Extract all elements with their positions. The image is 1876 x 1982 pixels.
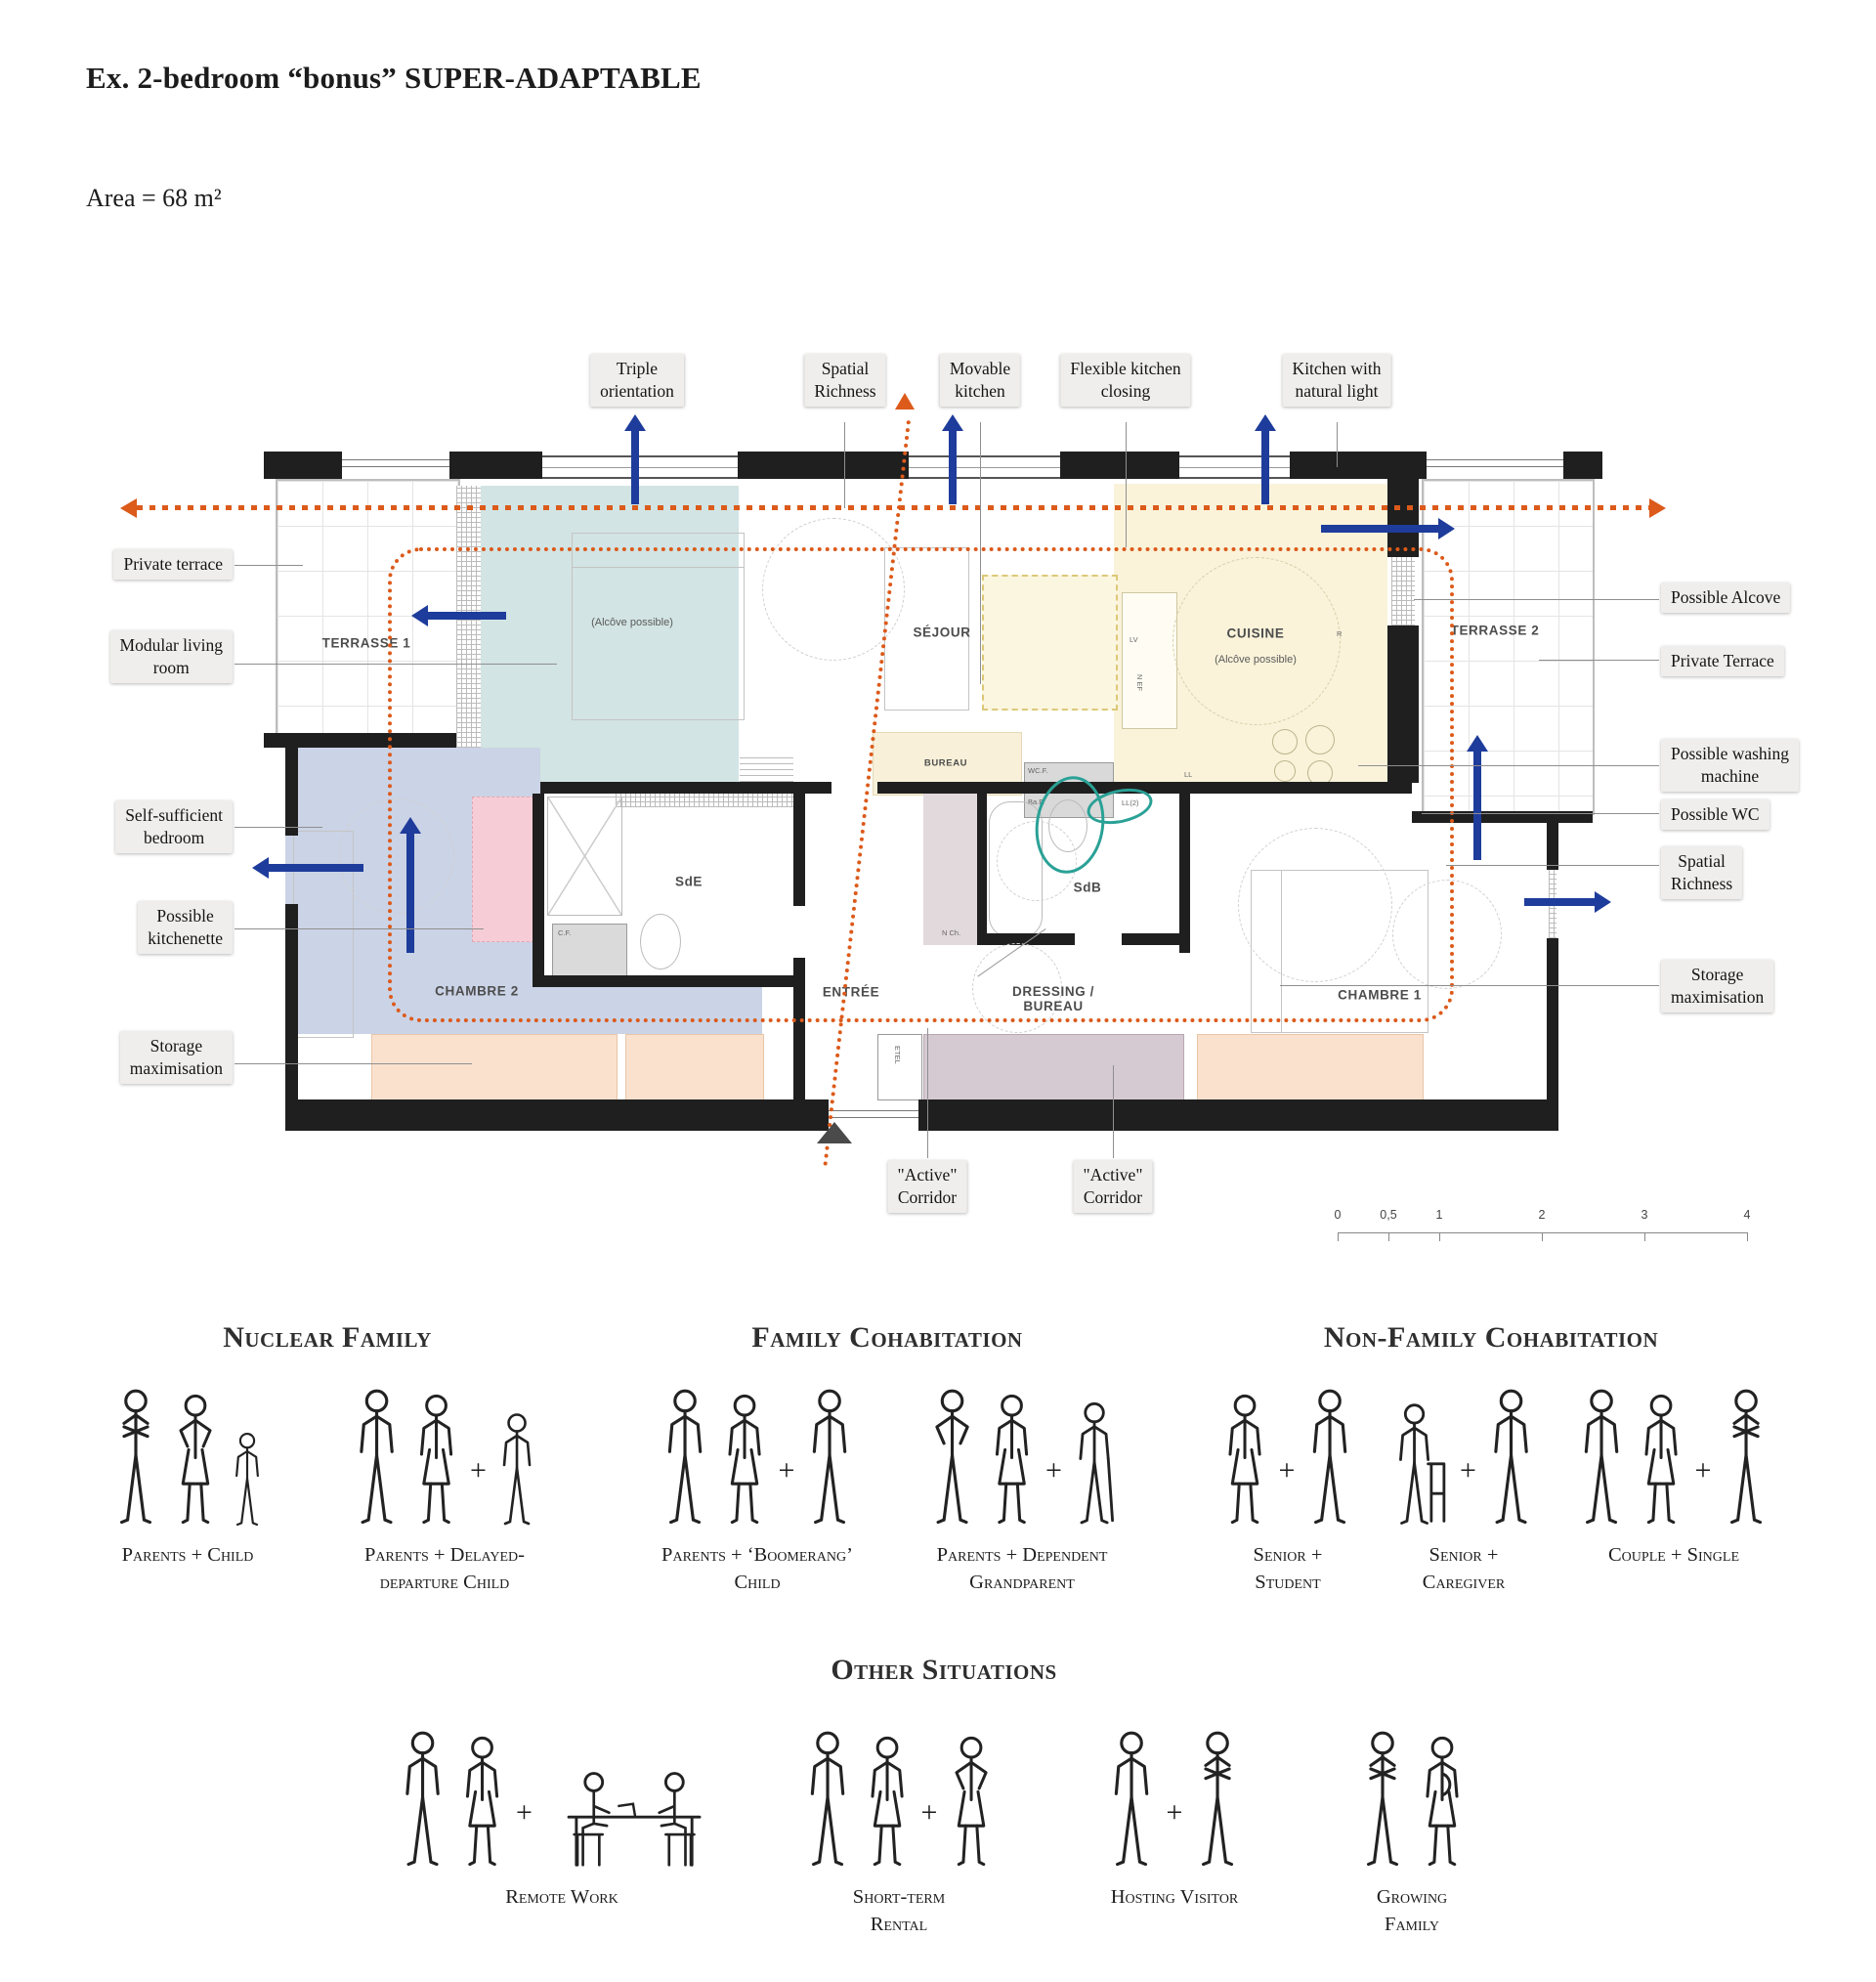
household-group: + Couple + Single xyxy=(1576,1383,1772,1570)
callout-flexible-kitchen: Flexible kitchenclosing xyxy=(1060,354,1190,407)
household-group: + Remote Work xyxy=(397,1725,727,1912)
group-label: Parents + DependentGrandparent xyxy=(926,1542,1118,1596)
leader xyxy=(980,422,981,684)
household-group: Parents + Child xyxy=(110,1383,266,1570)
plus-sign: + xyxy=(1695,1454,1712,1487)
plus-sign: + xyxy=(1045,1454,1062,1487)
leader xyxy=(234,664,557,665)
arrowhead xyxy=(1255,414,1276,431)
figures: + xyxy=(351,1383,538,1530)
wall xyxy=(1060,452,1179,479)
arrow-kitchen-terrace2 xyxy=(1321,525,1438,533)
figures: + xyxy=(1390,1383,1537,1530)
scale-tick xyxy=(1388,1232,1389,1241)
scale-bar: 0 0,5 1 2 3 4 xyxy=(1338,1208,1747,1247)
scale-num: 2 xyxy=(1539,1208,1546,1222)
group-label: Senior +Caregiver xyxy=(1390,1542,1537,1596)
household-group: GrowingFamily xyxy=(1357,1725,1468,1938)
figures: + xyxy=(1106,1725,1244,1872)
wall xyxy=(738,452,909,479)
entrance-marker xyxy=(817,1122,852,1143)
callout-storage-right: Storagemaximisation xyxy=(1661,960,1773,1013)
wall xyxy=(264,452,342,479)
figures xyxy=(110,1383,266,1530)
callout-storage-left: Storagemaximisation xyxy=(120,1031,233,1084)
leader xyxy=(1446,865,1659,866)
orange-arrowhead-up xyxy=(895,393,915,409)
group-label: Hosting Visitor xyxy=(1106,1884,1244,1912)
plus-sign: + xyxy=(516,1796,533,1830)
storage-strip xyxy=(625,1034,764,1100)
section-title-nonfamily-cohab: Non-Family Cohabitation xyxy=(1324,1321,1658,1355)
window xyxy=(1179,455,1290,479)
section-title-nuclear: Nuclear Family xyxy=(223,1321,432,1355)
plus-sign: + xyxy=(470,1454,487,1487)
leader xyxy=(1126,422,1127,547)
plus-sign: + xyxy=(1167,1796,1183,1830)
window xyxy=(542,455,738,479)
scale-num: 4 xyxy=(1744,1208,1751,1222)
orange-arrowhead-left xyxy=(120,498,137,518)
callout-self-sufficient-bedroom: Self-sufficientbedroom xyxy=(115,800,233,853)
arrow-kitchen-light xyxy=(1261,430,1269,504)
callout-possible-kitchenette: Possiblekitchenette xyxy=(138,901,233,954)
wall xyxy=(285,748,298,836)
arrowhead xyxy=(400,817,421,834)
scale-tick xyxy=(1439,1232,1440,1241)
wall xyxy=(449,452,542,479)
wall xyxy=(285,1099,829,1131)
callout-active-corridor-1: "Active"Corridor xyxy=(888,1160,967,1213)
wall xyxy=(918,1099,1558,1131)
scale-num: 1 xyxy=(1436,1208,1443,1222)
group-label: Couple + Single xyxy=(1576,1542,1772,1570)
scale-tick xyxy=(1747,1232,1748,1241)
scale-tick xyxy=(1644,1232,1645,1241)
leader xyxy=(234,565,303,566)
callout-washing-machine: Possible washingmachine xyxy=(1661,739,1799,792)
arrow-bedroom-exit xyxy=(269,864,363,872)
wall xyxy=(285,904,298,1099)
group-label: Senior +Student xyxy=(1220,1542,1356,1596)
window xyxy=(909,455,1060,479)
section-title-family-cohab: Family Cohabitation xyxy=(751,1321,1022,1355)
figures: + xyxy=(802,1725,997,1872)
leader xyxy=(1539,660,1659,661)
figures: + xyxy=(1220,1383,1356,1530)
figures: + xyxy=(397,1725,727,1872)
plus-sign: + xyxy=(1460,1454,1476,1487)
callout-active-corridor-2: "Active"Corridor xyxy=(1074,1160,1153,1213)
scale-tick xyxy=(1542,1232,1543,1241)
arrow-movable-kitchen xyxy=(949,430,957,504)
group-label: Parents + Child xyxy=(110,1542,266,1570)
scale-num: 3 xyxy=(1641,1208,1648,1222)
wall xyxy=(1547,811,1558,870)
arrow-terrace2-up xyxy=(1473,751,1481,860)
wall xyxy=(1563,452,1602,479)
leader xyxy=(234,1063,472,1064)
group-label: Remote Work xyxy=(397,1884,727,1912)
callout-spatial-richness-right: SpatialRichness xyxy=(1661,846,1742,899)
household-group: + Senior +Caregiver xyxy=(1390,1383,1537,1596)
circulation-loop xyxy=(388,547,1454,1022)
leader xyxy=(1113,1065,1114,1158)
orientation-axis xyxy=(137,505,1649,510)
arrowhead xyxy=(411,605,428,626)
arrowhead xyxy=(1467,735,1488,752)
storage-strip xyxy=(1197,1034,1424,1100)
callout-possible-wc: Possible WC xyxy=(1661,799,1769,830)
household-group: + Parents + ‘Boomerang’Child xyxy=(660,1383,856,1596)
terrace-rail xyxy=(342,459,449,467)
leader xyxy=(1414,599,1659,600)
callout-kitchen-light: Kitchen withnatural light xyxy=(1283,354,1391,407)
wall xyxy=(1387,452,1419,557)
scale-num: 0 xyxy=(1335,1208,1342,1222)
household-group: + Hosting Visitor xyxy=(1106,1725,1244,1912)
fixture-etel: ETEL xyxy=(893,1046,902,1064)
group-label: Parents + Delayed-departure Child xyxy=(351,1542,538,1596)
figures xyxy=(1357,1725,1468,1872)
entrance-threshold xyxy=(829,1110,918,1118)
figures: + xyxy=(1576,1383,1772,1530)
household-group: + Parents + Delayed-departure Child xyxy=(351,1383,538,1596)
arrowhead xyxy=(1595,891,1611,913)
household-group: + Short-termRental xyxy=(802,1725,997,1938)
leader xyxy=(234,827,322,828)
leader xyxy=(234,928,484,929)
callout-movable-kitchen: Movablekitchen xyxy=(940,354,1020,407)
arrow-triple-orientation xyxy=(631,430,639,504)
etel-closet xyxy=(877,1034,922,1100)
scale-tick xyxy=(1338,1232,1339,1241)
arrowhead xyxy=(942,414,963,431)
household-group: + Parents + DependentGrandparent xyxy=(926,1383,1118,1596)
group-label: Parents + ‘Boomerang’Child xyxy=(660,1542,856,1596)
area-label: Area = 68 m² xyxy=(86,184,222,213)
leader xyxy=(844,422,845,508)
figures: + xyxy=(926,1383,1118,1530)
leader xyxy=(1337,422,1338,467)
arrowhead xyxy=(624,414,646,431)
poster-page: Ex. 2-bedroom “bonus” SUPER-ADAPTABLE Ar… xyxy=(0,0,1876,1982)
leader xyxy=(1422,813,1659,814)
leader xyxy=(1280,985,1659,986)
plus-sign: + xyxy=(1279,1454,1296,1487)
leader xyxy=(1358,765,1659,766)
storage-strip xyxy=(371,1034,618,1100)
plus-sign: + xyxy=(921,1796,938,1830)
storage-strip-mauve xyxy=(923,1034,1184,1100)
orange-arrowhead-right xyxy=(1649,498,1666,518)
callout-private-terrace-right: Private Terrace xyxy=(1661,646,1784,676)
section-title-other: Other Situations xyxy=(831,1654,1056,1687)
group-label: GrowingFamily xyxy=(1357,1884,1468,1938)
plus-sign: + xyxy=(779,1454,795,1487)
arrow-chambre1-exit xyxy=(1524,898,1595,906)
room-label-terrasse2: TERRASSE 2 xyxy=(1451,624,1540,638)
arrow-living-terrace xyxy=(428,612,506,620)
figures: + xyxy=(660,1383,856,1530)
callout-possible-alcove: Possible Alcove xyxy=(1661,582,1790,613)
arrowhead xyxy=(1438,518,1455,539)
scale-num: 0,5 xyxy=(1380,1208,1396,1222)
arrow-bedroom2-terrace xyxy=(406,833,414,953)
group-label: Short-termRental xyxy=(802,1884,997,1938)
arrowhead xyxy=(252,857,269,879)
callout-private-terrace-left: Private terrace xyxy=(113,549,233,580)
household-group: + Senior +Student xyxy=(1220,1383,1356,1596)
callout-triple-orientation: Tripleorientation xyxy=(590,354,684,407)
leader xyxy=(927,1028,928,1158)
callout-modular-living: Modular livingroom xyxy=(110,630,233,683)
terrace-rail xyxy=(1427,459,1563,467)
callout-spatial-richness-top: SpatialRichness xyxy=(804,354,885,407)
page-title: Ex. 2-bedroom “bonus” SUPER-ADAPTABLE xyxy=(86,61,702,96)
